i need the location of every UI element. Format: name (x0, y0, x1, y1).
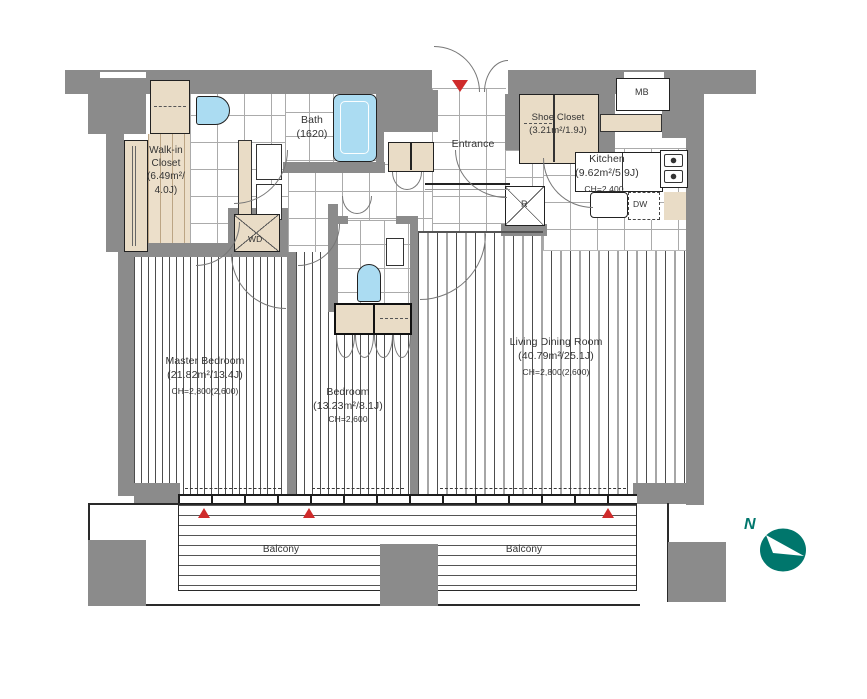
wardrobe (124, 140, 148, 252)
floor-boundary (543, 250, 686, 251)
cabinet-divider (410, 143, 412, 170)
wall (410, 216, 418, 505)
toilet-shelf (386, 238, 404, 266)
kitchen-label: Kitchen (9.62m²/5.9J) (575, 153, 639, 181)
kitchen-sink (590, 192, 628, 218)
washer-dryer-label: WD (248, 234, 262, 245)
toilet (357, 264, 381, 302)
north-label: N (744, 516, 756, 534)
meter-box-label: MB (635, 87, 649, 99)
balcony-hatch-marker-icon (198, 508, 210, 518)
bathtub (333, 94, 377, 162)
washbasin (196, 96, 230, 125)
kitchen-ceiling-label: CH=2,400 (584, 184, 623, 195)
master-bedroom-label: Master Bedroom (21.82m²/13.4J) (165, 355, 244, 383)
wall (686, 94, 704, 505)
floor-plan: Walk-in Closet (6.49m²/ 4.0J) Bath (1620… (0, 0, 867, 699)
bedroom-ceiling-label: CH=2,600 (328, 414, 367, 425)
hall-cabinet (388, 142, 434, 172)
closet-divider (380, 318, 408, 319)
wall (380, 90, 438, 132)
wall (118, 246, 134, 496)
hanger-rail (132, 146, 136, 246)
bath-label: Bath (1620) (297, 114, 328, 142)
balcony-label: Balcony (263, 543, 299, 556)
curtain-box-line (440, 488, 626, 489)
window-strip (178, 494, 637, 504)
entrance-label: Entrance (452, 138, 495, 152)
bedroom-closet (334, 303, 412, 335)
door-arc (484, 60, 508, 92)
wall (336, 216, 348, 224)
bedroom-label: Bedroom (13.23m²/8.1J) (313, 386, 383, 414)
wall (134, 483, 180, 504)
wall (106, 130, 124, 248)
entrance-marker-icon (452, 80, 468, 92)
burner-icon (664, 170, 683, 183)
shoe-closet-label: Shoe Closet (3.21m²/1.9J) (529, 112, 587, 137)
wall (283, 162, 385, 173)
washer-dryer-box (234, 214, 280, 252)
balcony-label: Balcony (506, 543, 542, 556)
balcony-hatch-marker-icon (303, 508, 315, 518)
living-dining-label: Living Dining Room (40.79m²/25.1J) (510, 336, 603, 364)
stove (660, 150, 688, 188)
balcony-slab-line (88, 604, 640, 606)
wall-window (100, 72, 146, 78)
balcony-hatch-marker-icon (602, 508, 614, 518)
curtain-box-line (312, 488, 404, 489)
closet-divider (373, 305, 375, 333)
wall (505, 94, 519, 150)
burner-icon (664, 154, 683, 167)
balcony-slab-line (88, 503, 180, 505)
cabinet-divider (154, 106, 186, 107)
bathtub-inner (340, 101, 369, 154)
living-dining-ceiling-label: CH=2,800(2,600) (523, 367, 590, 378)
curtain-box-line (185, 488, 281, 489)
wall (633, 483, 686, 504)
closet-cabinet (150, 80, 190, 134)
pillar (380, 544, 438, 606)
pillar (88, 540, 146, 606)
walk-in-closet-label: Walk-in Closet (6.49m²/ 4.0J) (147, 144, 185, 197)
floor-boundary (418, 231, 543, 233)
dishwasher-label: DW (633, 199, 647, 210)
wall (287, 252, 296, 505)
kitchen-upper-cabinet (600, 114, 662, 132)
pillar (668, 542, 726, 602)
kitchen-counter-end (664, 192, 686, 220)
refrigerator-label: R (521, 199, 528, 211)
master-bedroom-ceiling-label: CH=2,800(2,600) (172, 386, 239, 397)
compass-icon (759, 528, 807, 574)
pillar (88, 80, 146, 134)
